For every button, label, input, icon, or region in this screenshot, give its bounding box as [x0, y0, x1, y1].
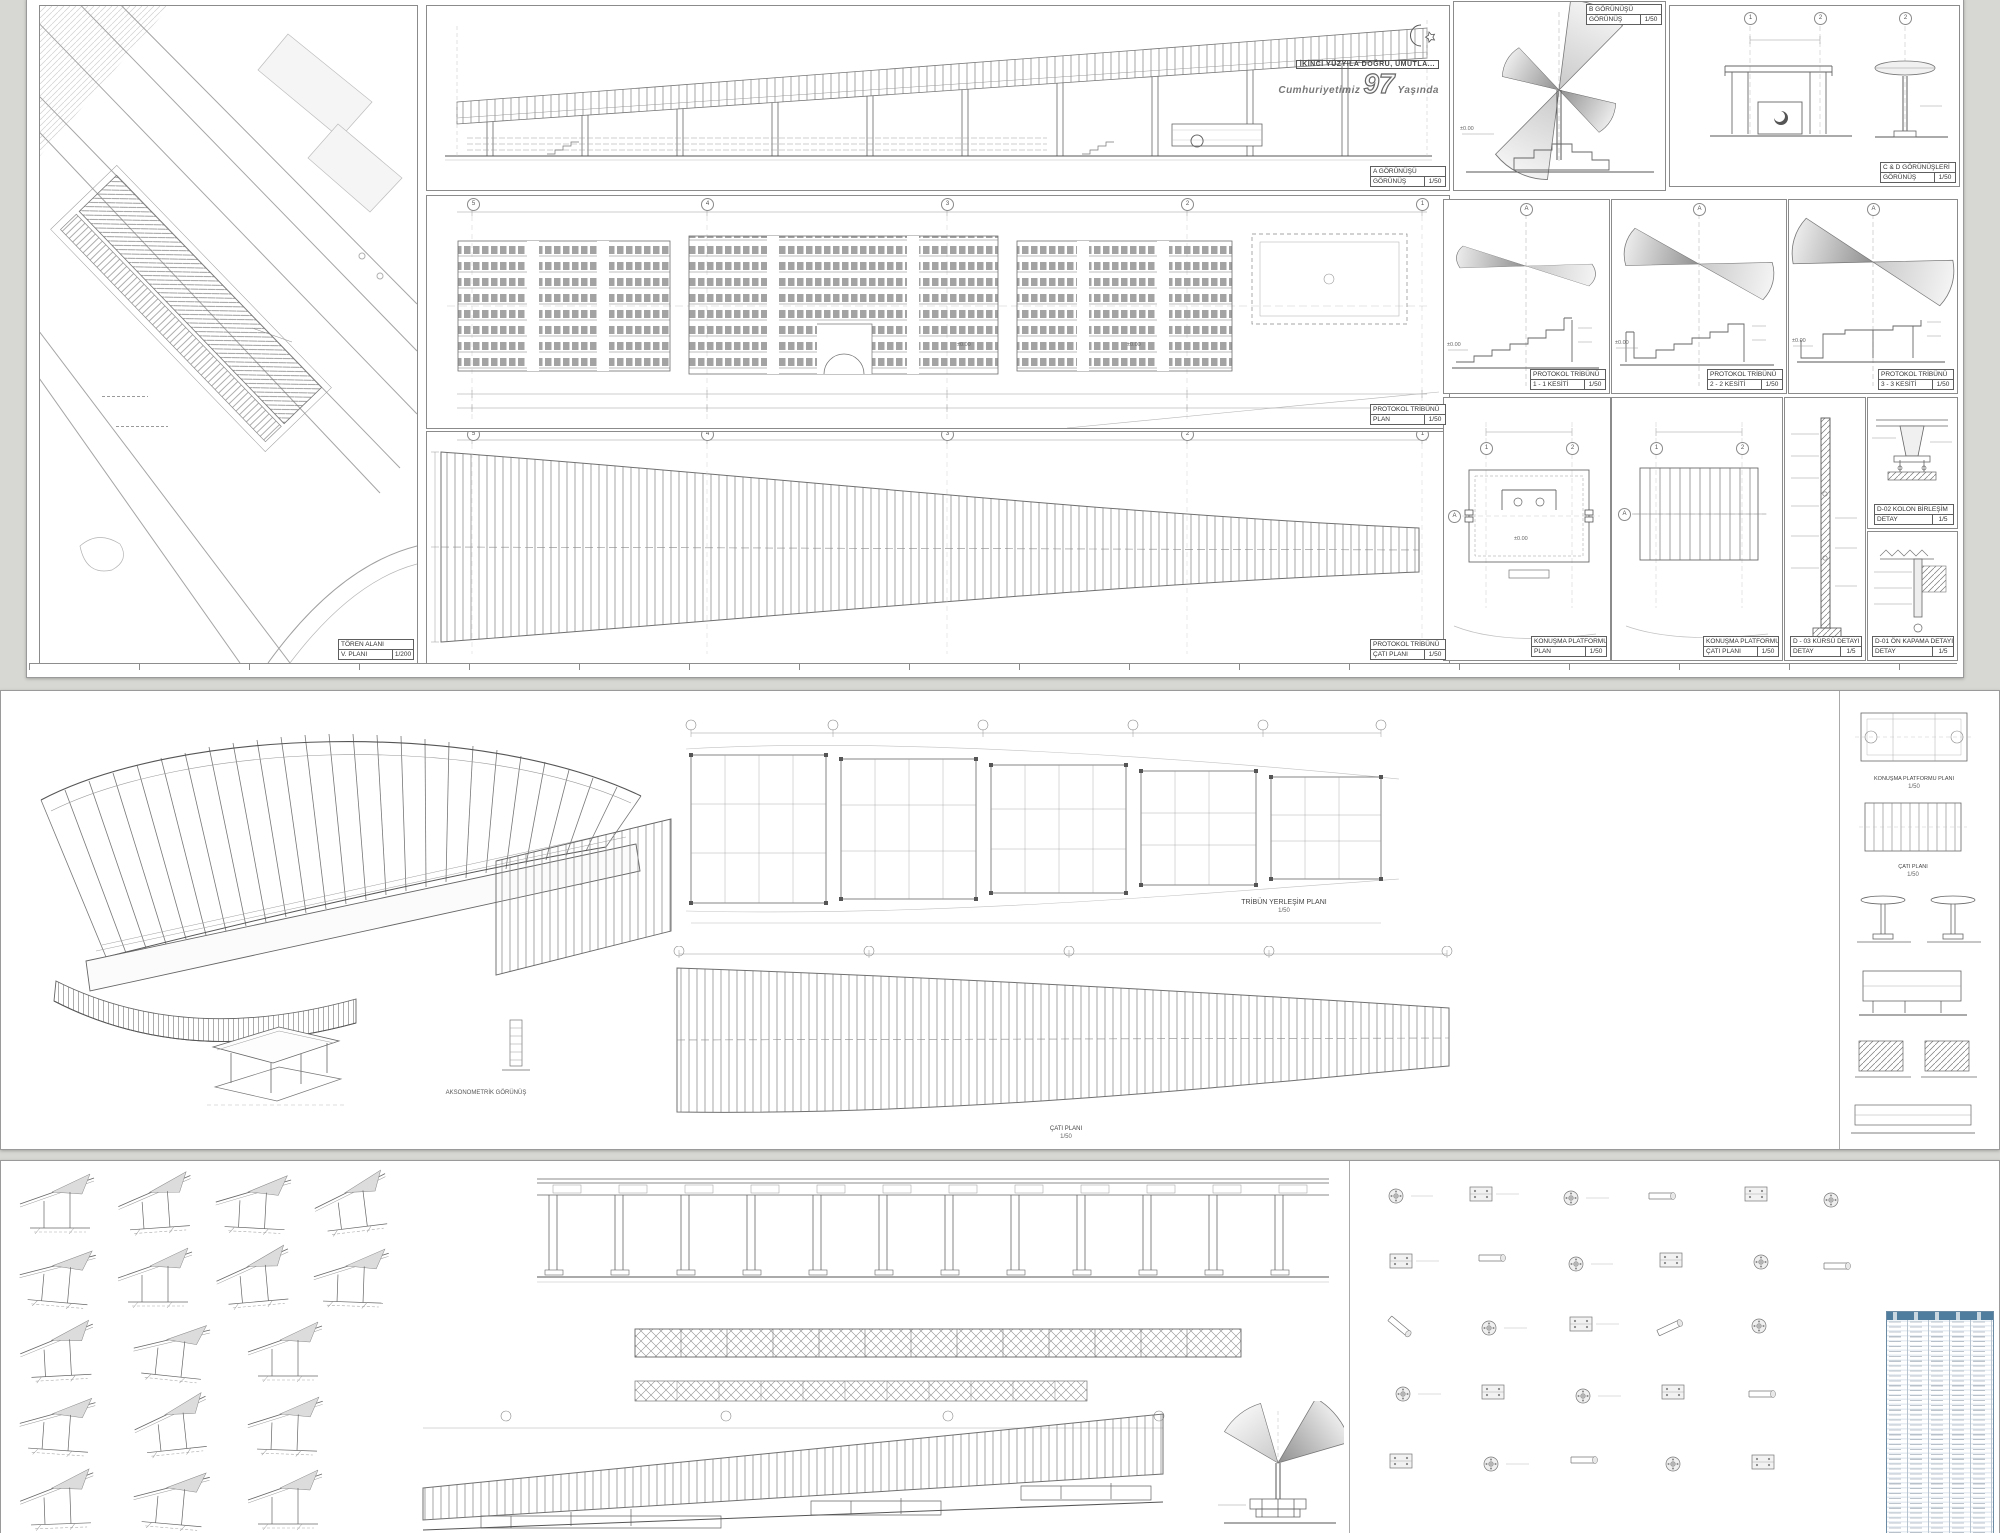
drawing-type: PLAN	[1371, 415, 1425, 424]
section-2-2-drawing	[1612, 200, 1786, 393]
mast-sections-drawing	[1849, 886, 1989, 948]
elevation-cd-drawing	[1670, 6, 1959, 186]
title-block-section-2-2: PROTOKOL TRİBÜNÜ 2 - 2 KESİTİ1/50	[1707, 369, 1783, 390]
drawing-type: GÖRÜNÜŞ	[1881, 173, 1935, 182]
drawing-title: PROTOKOL TRİBÜNÜ	[1708, 370, 1782, 380]
drawing-type: ÇATI PLANI	[1371, 650, 1425, 659]
grid-bubble-axis: A	[1448, 510, 1461, 523]
drawing-scale: 1/5	[1933, 647, 1953, 656]
panel-elevation-a: İKİNCİ YÜZYILA DOĞRU, UMUTLA... Cumhuriy…	[426, 5, 1450, 191]
truss-strip-2-drawing	[631, 1375, 1093, 1409]
kp-roof-small-drawing	[1857, 795, 1969, 859]
flagpole-detail-drawing	[496, 1016, 536, 1078]
drawing-type: ÇATI PLANI	[1704, 647, 1758, 656]
logo-word-2: Yaşında	[1398, 85, 1439, 96]
title-block-elevation-a: A GÖRÜNÜŞÜ GÖRÜNÜŞ1/50	[1370, 166, 1446, 187]
drawing-scale: 1/50	[1933, 380, 1953, 389]
grid-bubble: 1	[1416, 198, 1429, 211]
axonometric-label: AKSONOMETRİK GÖRÜNÜŞ	[381, 1089, 591, 1097]
roof-framing-scale: 1/50	[986, 1133, 1146, 1141]
level-marker: ±0.00	[1447, 342, 1461, 348]
drawing-title: TÖREN ALANI	[339, 640, 413, 650]
drawing-type: 3 - 3 KESİTİ	[1879, 380, 1933, 389]
drawing-title: PROTOKOL TRİBÜNÜ	[1371, 640, 1445, 650]
drawing-scale: 1/50	[1758, 647, 1778, 656]
panel-kolon-birlesim: D-02 KOLON BİRLEŞİM DETAY1/5	[1867, 397, 1958, 529]
drawing-title: PROTOKOL TRİBÜNÜ	[1531, 370, 1605, 380]
drawing-type: 1 - 1 KESİTİ	[1531, 380, 1585, 389]
drawing-scale: 1/50	[1935, 173, 1955, 182]
drawing-title: PROTOKOL TRİBÜNÜ	[1879, 370, 1953, 380]
grid-bubble-axis: A	[1693, 203, 1706, 216]
kp-plan-small-drawing	[1853, 703, 1975, 773]
kp-plan-small-title: KONUŞMA PLATFORMU PLANI	[1874, 776, 1954, 782]
title-block-elevation-cd: C & D GÖRÜNÜŞLERİ GÖRÜNÜŞ1/50	[1880, 162, 1956, 183]
panel-protokol-roof-plan: 5 4 3 2 1 PROTOKOL TRİBÜNÜ ÇATI PLANI1/5…	[426, 431, 1450, 664]
roof-framing-title: ÇATI PLANI	[1050, 1126, 1082, 1132]
drawing-board: TÖREN ALANI V. PLANI1/200	[0, 0, 2000, 1533]
konusma-roof-drawing	[1612, 398, 1782, 660]
tribun-plan-label: TRİBÜN YERLEŞİM PLANI 1/50	[1204, 899, 1364, 915]
drawing-scale: 1/50	[1762, 380, 1782, 389]
drawing-title: KONUŞMA PLATFORMU	[1532, 637, 1606, 647]
grid-bubble: 3	[941, 198, 954, 211]
kp-plan-small-scale: 1/50	[1846, 783, 1982, 791]
roof-framing-label: ÇATI PLANI 1/50	[986, 1125, 1146, 1141]
panel-section-2-2: A ±0.00 PROTOKOL TRİBÜNÜ 2 - 2 KESİTİ1/5…	[1611, 199, 1787, 394]
kp-roof-small-scale: 1/50	[1853, 871, 1973, 879]
foundation-details-drawing	[1851, 1033, 1981, 1089]
drawing-title: KONUŞMA PLATFORMU	[1704, 637, 1778, 647]
section-3-3-drawing	[1789, 200, 1957, 393]
node-details-drawing	[1361, 1166, 1876, 1528]
panel-konusma-plan: 1 2 A ±0.00 KONUŞMA PLATFORMU PLAN1/50	[1443, 397, 1611, 661]
drawing-scale: 1/50	[1641, 15, 1661, 24]
grid-bubble: 1	[1744, 12, 1757, 25]
site-note-mark	[116, 426, 168, 427]
panel-on-kapama: D-01 ÖN KAPAMA DETAYI DETAY1/5	[1867, 531, 1958, 661]
drawing-type: V. PLANI	[339, 650, 393, 659]
grid-bubble: 2	[1736, 442, 1749, 455]
schedule-row-text	[1889, 1320, 1991, 1533]
drawing-title: C & D GÖRÜNÜŞLERİ	[1881, 163, 1955, 173]
level-marker: ±0.00	[1514, 536, 1528, 542]
grid-bubble: 2	[1899, 12, 1912, 25]
sheet-2: AKSONOMETRİK GÖRÜNÜŞ	[0, 690, 2000, 1150]
logo-word-1: Cumhuriyetimiz	[1278, 85, 1360, 96]
roof-framing-plan-drawing	[669, 946, 1459, 1124]
panel-section-3-3: A ±0.00 PROTOKOL TRİBÜNÜ 3 - 3 KESİTİ1/5…	[1788, 199, 1958, 394]
drawing-title: D-01 ÖN KAPAMA DETAYI	[1873, 637, 1953, 647]
title-block-kursu: D - 03 KÜRSÜ DETAYI DETAY1/5	[1790, 636, 1862, 657]
protokol-roof-drawing	[427, 432, 1449, 663]
sheet-3	[0, 1160, 2000, 1533]
grid-bubble: 5	[467, 198, 480, 211]
drawing-scale: 1/50	[1425, 650, 1445, 659]
panel-elevation-b: ±0.00 B GÖRÜNÜŞÜ GÖRÜNÜŞ1/50	[1453, 1, 1666, 191]
grid-bubble: 4	[701, 198, 714, 211]
anniversary-logo: İKİNCİ YÜZYILA DOĞRU, UMUTLA... Cumhuriy…	[1278, 22, 1439, 96]
title-block-kapama: D-01 ÖN KAPAMA DETAYI DETAY1/5	[1872, 636, 1954, 657]
platform-side-drawing	[1853, 959, 1973, 1021]
level-marker: ±0.00	[1792, 338, 1806, 344]
drawing-scale: 1/50	[1586, 647, 1606, 656]
protokol-plan-drawing	[427, 196, 1449, 428]
grid-bubble-axis: A	[1618, 508, 1631, 521]
grid-bubble-axis: A	[1520, 203, 1533, 216]
drawing-title: PROTOKOL TRİBÜNÜ	[1371, 405, 1445, 415]
schedule-header-row	[1887, 1312, 1993, 1320]
drawing-title: B GÖRÜNÜŞÜ	[1587, 5, 1661, 15]
level-marker: ±0.00	[1460, 126, 1474, 132]
level-marker: ±0.00	[957, 342, 971, 348]
tribun-plan-title: TRİBÜN YERLEŞİM PLANI	[1241, 899, 1326, 906]
konusma-plan-drawing	[1444, 398, 1610, 660]
wide-detail-drawing	[1849, 1095, 1977, 1143]
drawing-scale: 1/50	[1585, 380, 1605, 389]
crescent-star-icon	[1405, 22, 1439, 48]
title-block-konusma-roof: KONUŞMA PLATFORMU ÇATI PLANI1/50	[1703, 636, 1779, 657]
grid-bubble: 1	[1480, 442, 1493, 455]
sheet2-divider	[1839, 691, 1840, 1149]
material-schedule-table	[1886, 1311, 1994, 1533]
sheet3-divider	[1349, 1161, 1350, 1533]
axonometric-view-drawing	[26, 699, 676, 1074]
title-block-protokol-plan: PROTOKOL TRİBÜNÜ PLAN1/50	[1370, 404, 1446, 425]
title-block-site: TÖREN ALANI V. PLANI1/200	[338, 639, 414, 660]
level-marker: ±0.00	[1127, 342, 1141, 348]
level-marker: ±0.00	[1615, 340, 1629, 346]
drawing-type: GÖRÜNÜŞ	[1371, 177, 1425, 186]
title-block-section-1-1: PROTOKOL TRİBÜNÜ 1 - 1 KESİTİ1/50	[1530, 369, 1606, 390]
sheet1-bottom-ruler	[29, 663, 1957, 670]
logo-number-97: 97	[1363, 72, 1394, 96]
grid-bubble-axis: A	[1867, 203, 1880, 216]
drawing-scale: 1/5	[1933, 515, 1953, 524]
grid-bubble: 2	[1566, 442, 1579, 455]
tribun-plan-scale: 1/50	[1204, 907, 1364, 915]
kursu-detay-drawing	[1785, 398, 1865, 660]
title-block-protokol-roof: PROTOKOL TRİBÜNÜ ÇATI PLANI1/50	[1370, 639, 1446, 660]
kp-roof-small-title: ÇATI PLANI	[1898, 864, 1928, 870]
drawing-scale: 1/50	[1425, 177, 1445, 186]
section-1-1-drawing	[1444, 200, 1609, 393]
drawing-type: PLAN	[1532, 647, 1586, 656]
panel-site-plan: TÖREN ALANI V. PLANI1/200	[39, 5, 418, 664]
drawing-title: A GÖRÜNÜŞÜ	[1371, 167, 1445, 177]
colonnade-elevation-drawing	[531, 1173, 1336, 1303]
title-block-elevation-b: B GÖRÜNÜŞÜ GÖRÜNÜŞ1/50	[1586, 4, 1662, 25]
drawing-scale: 1/200	[393, 650, 413, 659]
panel-konusma-roof: 1 2 A KONUŞMA PLATFORMU ÇATI PLANI1/50	[1611, 397, 1783, 661]
kp-plan-small-label: KONUŞMA PLATFORMU PLANI 1/50	[1846, 775, 1982, 791]
drawing-type: GÖRÜNÜŞ	[1587, 15, 1641, 24]
drawing-title: D - 03 KÜRSÜ DETAYI	[1791, 637, 1861, 647]
title-block-section-3-3: PROTOKOL TRİBÜNÜ 3 - 3 KESİTİ1/50	[1878, 369, 1954, 390]
drawing-type: DETAY	[1873, 647, 1933, 656]
panel-protokol-plan: 5 4 3 2 1 ±0.00 ±0.00 PROTOKOL TRİBÜNÜ P…	[426, 195, 1450, 429]
drawing-scale: 1/5	[1841, 647, 1861, 656]
title-block-kolon: D-02 KOLON BİRLEŞİM DETAY1/5	[1874, 504, 1954, 525]
drawing-type: DETAY	[1875, 515, 1933, 524]
kp-roof-small-label: ÇATI PLANI 1/50	[1853, 863, 1973, 879]
title-block-konusma-plan: KONUŞMA PLATFORMU PLAN1/50	[1531, 636, 1607, 657]
tapered-elevation-drawing	[421, 1406, 1166, 1533]
drawing-type: 2 - 2 KESİTİ	[1708, 380, 1762, 389]
fan-structure-drawing	[1216, 1401, 1344, 1529]
site-note-mark	[102, 396, 148, 397]
panel-section-1-1: A ±0.00 PROTOKOL TRİBÜNÜ 1 - 1 KESİTİ1/5…	[1443, 199, 1610, 394]
grid-bubble: 1	[1650, 442, 1663, 455]
site-plan-drawing	[40, 6, 417, 663]
shelter-axonometric-drawing	[201, 1021, 351, 1113]
truss-strip-drawing	[631, 1321, 1246, 1367]
grid-bubble: 2	[1814, 12, 1827, 25]
sheet-1: TÖREN ALANI V. PLANI1/200	[26, 0, 1964, 678]
panel-elevation-cd: 1 2 2 C & D GÖRÜNÜŞLERİ GÖRÜNÜŞ1/50	[1669, 5, 1960, 187]
grid-bubble: 2	[1181, 198, 1194, 211]
drawing-scale: 1/50	[1425, 415, 1445, 424]
elevation-b-drawing	[1454, 2, 1665, 190]
drawing-title: D-02 KOLON BİRLEŞİM	[1875, 505, 1953, 515]
drawing-type: DETAY	[1791, 647, 1841, 656]
panel-kursu-detay: D - 03 KÜRSÜ DETAYI DETAY1/5	[1784, 397, 1866, 661]
